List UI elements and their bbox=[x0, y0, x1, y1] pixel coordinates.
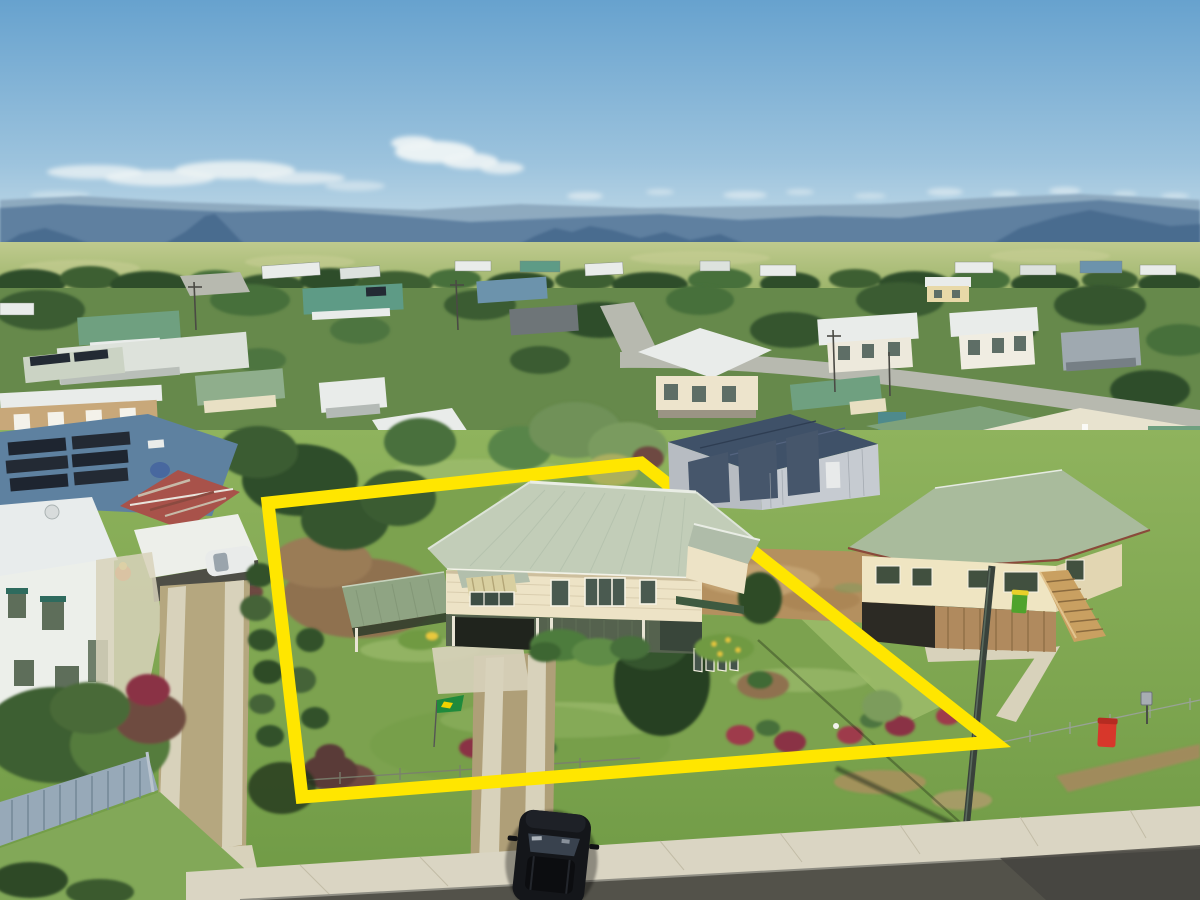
shed-white-mid bbox=[319, 377, 387, 418]
house-white-two-storey-far-right bbox=[949, 307, 1038, 370]
street-left bbox=[180, 272, 250, 296]
windows bbox=[551, 578, 656, 606]
aerial-photo bbox=[0, 0, 1200, 900]
house-teal-roof bbox=[302, 283, 403, 320]
carport-opening bbox=[452, 617, 534, 650]
green-wheelie-bin bbox=[1010, 589, 1029, 613]
shed-cream-green-roof bbox=[195, 368, 285, 413]
photo-canvas bbox=[0, 0, 1200, 900]
house-cream-small bbox=[925, 277, 971, 302]
red-wheelie-bin bbox=[1096, 717, 1117, 747]
garden-sprinkler bbox=[833, 723, 839, 729]
shed-grey-right bbox=[1061, 327, 1141, 371]
house-dark-grey bbox=[509, 305, 579, 336]
house-white-two-storey-right bbox=[817, 313, 919, 373]
